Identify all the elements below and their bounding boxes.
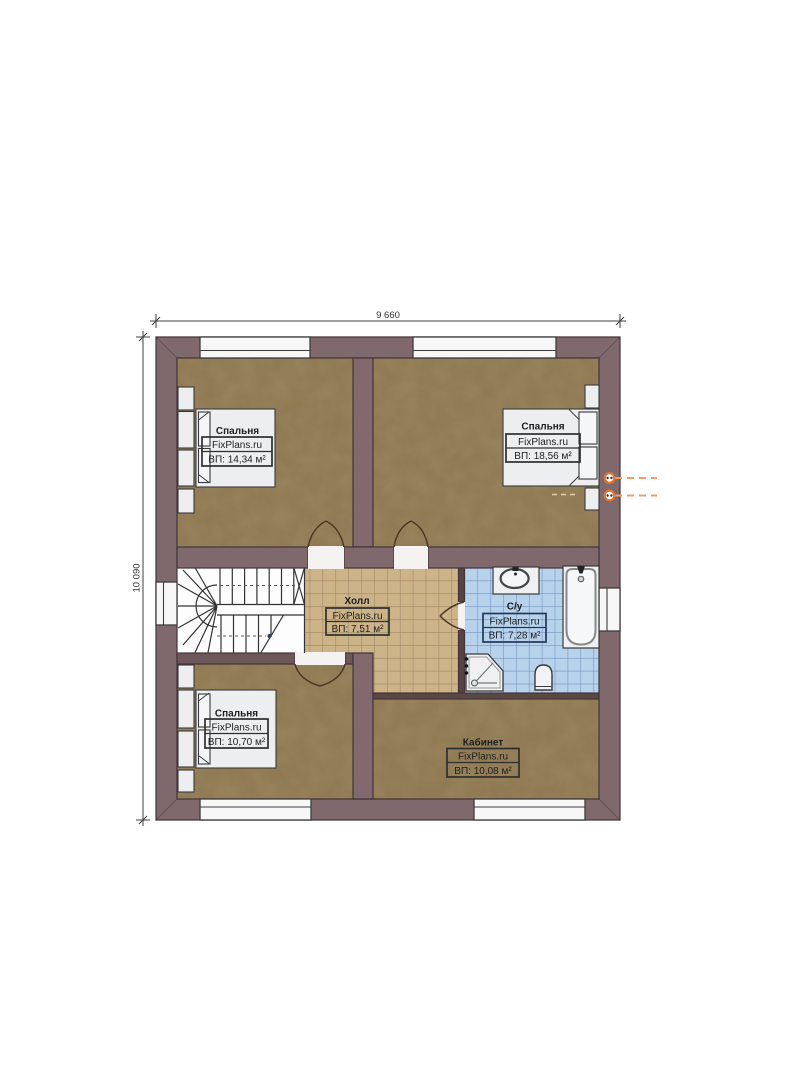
svg-text:ВП: 18,56 м²: ВП: 18,56 м² [514,451,572,462]
svg-text:FixPlans.ru: FixPlans.ru [518,437,568,448]
svg-text:10 090: 10 090 [132,563,143,592]
svg-text:Холл: Холл [344,596,369,607]
svg-text:Кабинет: Кабинет [463,737,504,749]
svg-text:FixPlans.ru: FixPlans.ru [458,751,508,762]
svg-text:FixPlans.ru: FixPlans.ru [489,616,539,627]
svg-text:ВП: 7,51 м²: ВП: 7,51 м² [332,624,385,635]
svg-text:FixPlans.ru: FixPlans.ru [212,440,262,451]
svg-text:ВП: 7,28 м²: ВП: 7,28 м² [489,631,542,642]
svg-text:Спальня: Спальня [216,426,259,437]
svg-text:ВП: 10,08 м²: ВП: 10,08 м² [454,766,512,777]
svg-text:Спальня: Спальня [215,709,258,720]
svg-text:ВП: 10,70 м²: ВП: 10,70 м² [208,737,266,748]
svg-text:9 660: 9 660 [376,310,400,321]
svg-text:FixPlans.ru: FixPlans.ru [211,722,261,733]
svg-text:FixPlans.ru: FixPlans.ru [332,611,382,622]
svg-text:С/у: С/у [507,602,523,613]
svg-text:Спальня: Спальня [521,422,564,433]
svg-text:ВП: 14,34 м²: ВП: 14,34 м² [208,455,266,466]
